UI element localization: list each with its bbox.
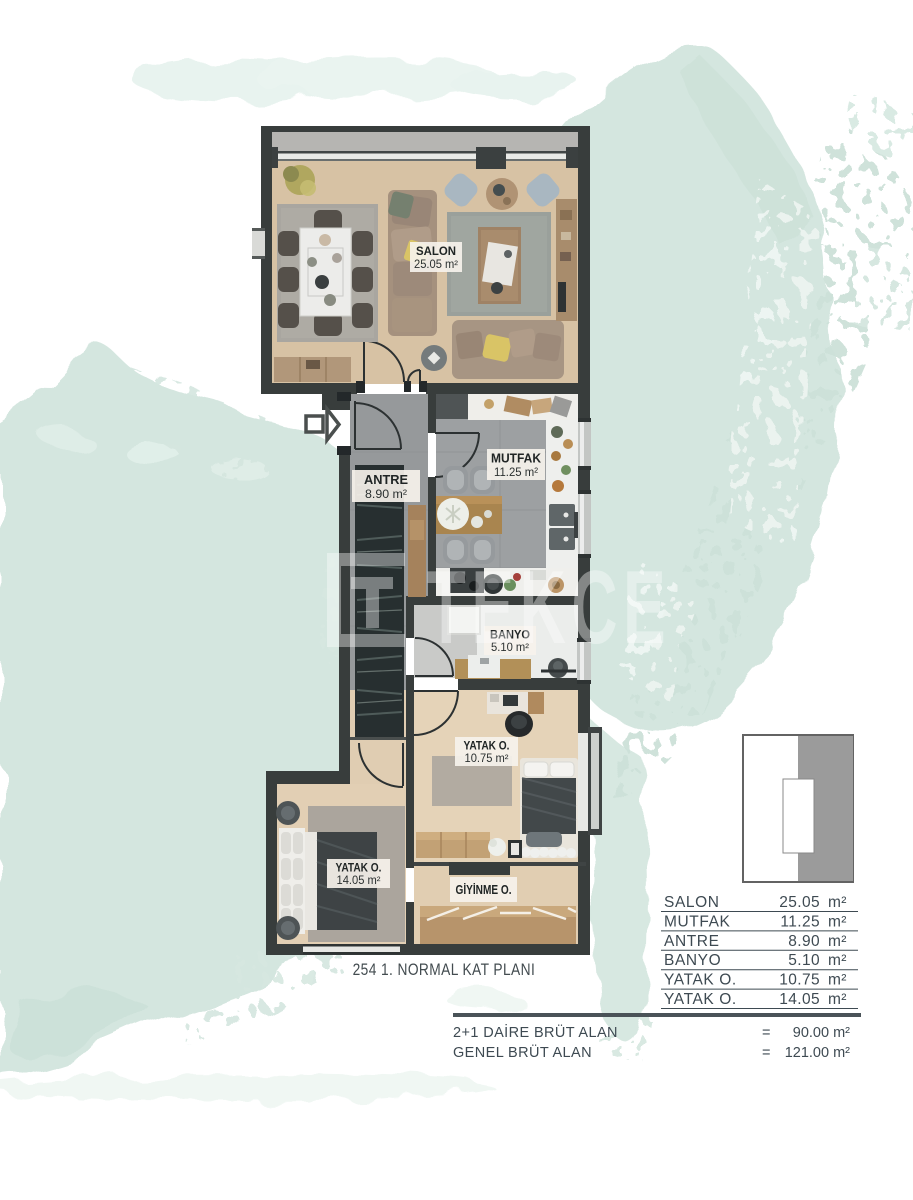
svg-text:m²: m² [828,952,847,969]
svg-text:25.05 m²: 25.05 m² [414,259,458,271]
svg-text:90.00 m²: 90.00 m² [793,1025,850,1041]
svg-text:ANTRE: ANTRE [364,472,408,487]
svg-text:MUTFAK: MUTFAK [491,451,542,466]
svg-text:YATAK O.: YATAK O. [336,861,382,875]
svg-text:GENEL BRÜT ALAN: GENEL BRÜT ALAN [453,1043,592,1061]
svg-text:m²: m² [828,933,847,950]
svg-text:11.25: 11.25 [780,913,820,930]
svg-text:YATAK O.: YATAK O. [664,972,737,989]
svg-text:YATAK O.: YATAK O. [664,991,737,1008]
svg-text:121.00 m²: 121.00 m² [785,1045,850,1061]
svg-text:10.75 m²: 10.75 m² [465,753,509,765]
svg-text:254 1. NORMAL KAT PLANI: 254 1. NORMAL KAT PLANI [353,961,536,980]
svg-text:m²: m² [828,991,847,1008]
svg-text:5.10: 5.10 [788,952,820,969]
svg-text:10.75: 10.75 [779,972,820,989]
svg-text:m²: m² [828,913,847,930]
svg-text:m²: m² [828,972,847,989]
svg-text:MUTFAK: MUTFAK [664,913,731,930]
svg-text:8.90 m²: 8.90 m² [365,487,407,501]
svg-text:TEKCE: TEKCE [427,550,671,666]
svg-text:YATAK O.: YATAK O. [464,739,510,753]
svg-text:25.05: 25.05 [779,894,820,911]
svg-text:14.05: 14.05 [779,991,820,1008]
svg-text:2+1 DAİRE BRÜT ALAN: 2+1 DAİRE BRÜT ALAN [453,1023,618,1041]
svg-text:GİYİNME O.: GİYİNME O. [456,882,512,897]
svg-text:=: = [762,1045,770,1061]
svg-text:BANYO: BANYO [664,952,721,969]
svg-text:SALON: SALON [416,244,456,258]
svg-text:=: = [762,1025,770,1041]
svg-text:11.25 m²: 11.25 m² [494,465,538,479]
svg-text:SALON: SALON [664,894,720,911]
svg-text:14.05 m²: 14.05 m² [337,875,381,887]
svg-text:ANTRE: ANTRE [664,933,720,950]
svg-text:8.90: 8.90 [788,933,820,950]
svg-text:m²: m² [828,894,847,911]
